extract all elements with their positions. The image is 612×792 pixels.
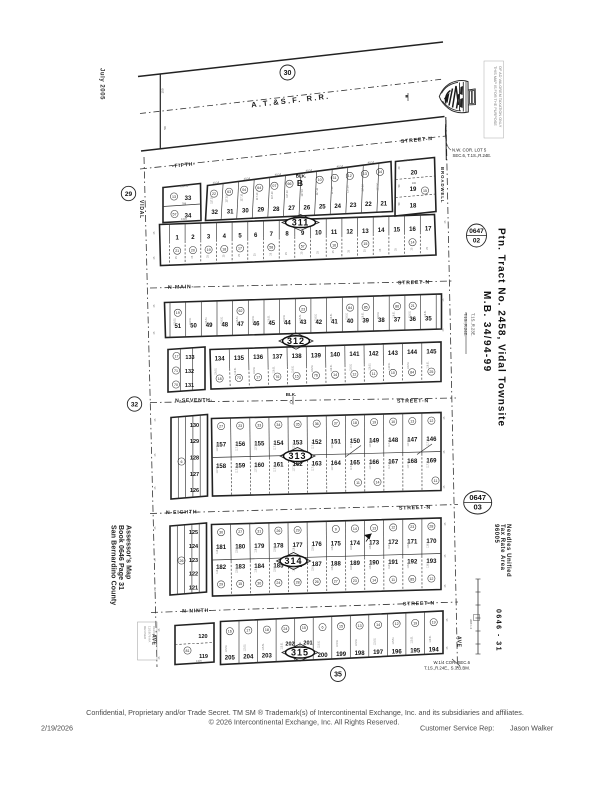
svg-text:116.51: 116.51 bbox=[393, 311, 396, 319]
svg-text:18: 18 bbox=[353, 421, 357, 425]
svg-text:141: 141 bbox=[349, 352, 360, 358]
svg-text:202: 202 bbox=[285, 642, 294, 648]
svg-text:116.51: 116.51 bbox=[234, 367, 237, 375]
svg-text:16: 16 bbox=[332, 243, 336, 247]
svg-text:201: 201 bbox=[303, 641, 312, 647]
svg-text:117.10: 117.10 bbox=[346, 185, 349, 193]
svg-text:Confidential, Proprietary and/: Confidential, Proprietary and/or Trade S… bbox=[86, 708, 524, 717]
svg-text:117.10: 117.10 bbox=[241, 193, 244, 201]
svg-text:116.51: 116.51 bbox=[205, 317, 208, 325]
svg-text:17: 17 bbox=[246, 629, 250, 633]
svg-text:15: 15 bbox=[302, 626, 306, 630]
svg-text:Ptn. Tract No. 2458, Vidal Tow: Ptn. Tract No. 2458, Vidal Townsite bbox=[496, 228, 507, 427]
svg-text:15: 15 bbox=[423, 189, 427, 193]
svg-text:117.16: 117.16 bbox=[293, 464, 296, 472]
svg-text:17: 17 bbox=[175, 354, 179, 358]
svg-text:14: 14 bbox=[376, 480, 380, 484]
svg-text:117.10: 117.10 bbox=[316, 187, 319, 195]
svg-text:SEC.6, T.1S.,R.24E.: SEC.6, T.1S.,R.24E. bbox=[453, 153, 492, 158]
svg-text:40.14: 40.14 bbox=[274, 172, 281, 177]
svg-text:17: 17 bbox=[256, 376, 260, 380]
svg-text:116.51: 116.51 bbox=[369, 363, 372, 371]
svg-text:115.51: 115.51 bbox=[373, 637, 376, 645]
svg-text:117.16: 117.16 bbox=[216, 444, 219, 452]
svg-text:18: 18 bbox=[265, 628, 269, 632]
svg-text:28: 28 bbox=[273, 207, 280, 213]
svg-text:117.16: 117.16 bbox=[426, 438, 429, 446]
svg-text:96005: 96005 bbox=[493, 524, 499, 544]
svg-text:116.51: 116.51 bbox=[330, 364, 333, 372]
svg-text:117.16: 117.16 bbox=[312, 441, 315, 449]
svg-text:117.16: 117.16 bbox=[369, 440, 372, 448]
svg-text:117.16: 117.16 bbox=[388, 439, 391, 447]
svg-text:30: 30 bbox=[284, 70, 292, 77]
svg-text:116.51: 116.51 bbox=[299, 314, 302, 322]
svg-text:13: 13 bbox=[410, 419, 414, 423]
svg-text:32: 32 bbox=[131, 401, 139, 408]
svg-text:13: 13 bbox=[358, 624, 362, 628]
svg-text:756.50: 756.50 bbox=[179, 184, 188, 189]
svg-text:11: 11 bbox=[372, 372, 376, 376]
svg-text:117.10: 117.10 bbox=[271, 191, 274, 199]
svg-text:Book 0646 Page 31: Book 0646 Page 31 bbox=[117, 525, 124, 590]
svg-text:27: 27 bbox=[219, 424, 223, 428]
svg-text:37: 37 bbox=[334, 421, 338, 425]
svg-text:31: 31 bbox=[257, 530, 261, 534]
svg-text:12: 12 bbox=[348, 174, 352, 178]
svg-text:117.10: 117.10 bbox=[361, 184, 364, 192]
svg-text:118.5: 118.5 bbox=[369, 543, 372, 549]
svg-text:205: 205 bbox=[225, 655, 236, 661]
svg-text:27: 27 bbox=[334, 580, 338, 584]
svg-text:118.5: 118.5 bbox=[254, 566, 257, 572]
svg-text:118.5: 118.5 bbox=[235, 547, 238, 553]
svg-text:312: 312 bbox=[287, 336, 305, 346]
svg-text:85: 85 bbox=[364, 305, 368, 309]
svg-text:81: 81 bbox=[186, 649, 190, 653]
svg-text:76: 76 bbox=[314, 374, 318, 378]
svg-text:6: 6 bbox=[322, 625, 324, 629]
svg-text:30: 30 bbox=[219, 531, 223, 535]
svg-text:116.51: 116.51 bbox=[189, 317, 192, 325]
svg-text:118.5: 118.5 bbox=[407, 542, 410, 548]
svg-text:17: 17 bbox=[425, 227, 432, 233]
svg-text:116.51: 116.51 bbox=[424, 310, 427, 318]
svg-text:12: 12 bbox=[352, 372, 356, 376]
svg-text:118.5: 118.5 bbox=[293, 565, 296, 571]
svg-text:15: 15 bbox=[363, 242, 367, 246]
svg-text:118.5: 118.5 bbox=[216, 567, 219, 573]
svg-text:116.51: 116.51 bbox=[283, 314, 286, 322]
svg-text:AVE: AVE bbox=[456, 636, 462, 648]
svg-text:13: 13 bbox=[363, 172, 367, 176]
svg-text:W.1/4 COR. SEC.6: W.1/4 COR. SEC.6 bbox=[433, 660, 470, 665]
svg-text:117.16: 117.16 bbox=[216, 466, 219, 474]
svg-text:32: 32 bbox=[211, 210, 218, 216]
svg-text:© 2026 Intercontinental Exchan: © 2026 Intercontinental Exchange, Inc. A… bbox=[209, 718, 400, 727]
svg-text:197: 197 bbox=[373, 650, 384, 656]
svg-text:25: 25 bbox=[319, 205, 326, 211]
svg-text:02: 02 bbox=[473, 238, 481, 245]
svg-text:117.16: 117.16 bbox=[407, 439, 410, 447]
svg-text:117.16: 117.16 bbox=[235, 465, 238, 473]
svg-text:28: 28 bbox=[296, 581, 300, 585]
svg-text:73: 73 bbox=[237, 376, 241, 380]
svg-text:64: 64 bbox=[257, 186, 261, 190]
svg-text:22: 22 bbox=[212, 192, 216, 196]
svg-text:29: 29 bbox=[219, 583, 223, 587]
svg-text:BROADWELL: BROADWELL bbox=[440, 167, 445, 203]
svg-text:15: 15 bbox=[238, 582, 242, 586]
svg-text:Jason Walker: Jason Walker bbox=[510, 724, 554, 733]
svg-text:117.10: 117.10 bbox=[377, 182, 380, 190]
svg-text:85: 85 bbox=[410, 577, 414, 581]
svg-text:26: 26 bbox=[180, 559, 184, 563]
svg-text:N.W. COR. LOT 5: N.W. COR. LOT 5 bbox=[452, 148, 487, 153]
svg-text:117.16: 117.16 bbox=[273, 442, 276, 450]
svg-text:199: 199 bbox=[336, 652, 347, 658]
svg-text:15: 15 bbox=[393, 228, 400, 234]
svg-text:14: 14 bbox=[353, 527, 357, 531]
svg-text:OF AD VALOREM TAXATION ONLY: OF AD VALOREM TAXATION ONLY bbox=[498, 66, 502, 128]
svg-text:13: 13 bbox=[172, 195, 176, 199]
svg-text:120: 120 bbox=[198, 634, 207, 640]
svg-text:116.51: 116.51 bbox=[272, 366, 275, 374]
svg-text:19: 19 bbox=[432, 621, 436, 625]
svg-text:144: 144 bbox=[407, 350, 418, 356]
svg-text:136: 136 bbox=[253, 355, 264, 361]
svg-text:26: 26 bbox=[304, 205, 311, 211]
svg-text:REVISED: REVISED bbox=[143, 626, 147, 640]
svg-text:12: 12 bbox=[429, 419, 433, 423]
svg-text:27: 27 bbox=[288, 206, 295, 212]
svg-text:198: 198 bbox=[355, 651, 366, 657]
svg-text:23: 23 bbox=[301, 307, 305, 311]
svg-text:34: 34 bbox=[276, 423, 280, 427]
svg-text:116.51: 116.51 bbox=[408, 310, 411, 318]
svg-text:1"=100': 1"=100' bbox=[469, 619, 473, 629]
svg-text:118.5: 118.5 bbox=[273, 546, 276, 552]
svg-text:50: 50 bbox=[163, 126, 167, 130]
svg-text:STREET-N: STREET-N bbox=[398, 280, 430, 287]
svg-text:116.51: 116.51 bbox=[426, 361, 429, 369]
svg-text:117.10: 117.10 bbox=[226, 194, 229, 202]
svg-text:0647: 0647 bbox=[469, 228, 484, 235]
svg-text:139: 139 bbox=[311, 353, 322, 359]
svg-text:115.51: 115.51 bbox=[336, 639, 339, 647]
svg-text:117.16: 117.16 bbox=[350, 440, 353, 448]
svg-text:118.5: 118.5 bbox=[273, 566, 276, 572]
svg-text:B: B bbox=[297, 178, 303, 188]
svg-text:T.1S.,R.23E.: T.1S.,R.23E. bbox=[471, 313, 476, 337]
svg-text:116.51: 116.51 bbox=[220, 316, 223, 324]
svg-text:118.5: 118.5 bbox=[388, 562, 391, 568]
svg-text:14: 14 bbox=[376, 623, 380, 627]
svg-text:118.5: 118.5 bbox=[369, 563, 372, 569]
svg-text:118.5: 118.5 bbox=[312, 565, 315, 571]
svg-text:28: 28 bbox=[429, 525, 433, 529]
svg-text:76: 76 bbox=[275, 375, 279, 379]
svg-text:STREET-N: STREET-N bbox=[403, 600, 435, 607]
svg-text:23: 23 bbox=[238, 424, 242, 428]
svg-text:VIDAL: VIDAL bbox=[138, 200, 144, 219]
svg-text:118.5: 118.5 bbox=[312, 545, 315, 551]
svg-text:30: 30 bbox=[257, 582, 261, 586]
svg-text:100: 100 bbox=[412, 182, 417, 185]
svg-text:12: 12 bbox=[346, 229, 353, 235]
svg-text:9: 9 bbox=[335, 527, 337, 531]
svg-text:N-MAIN-: N-MAIN- bbox=[168, 284, 194, 291]
svg-text:16: 16 bbox=[228, 630, 232, 634]
svg-text:10: 10 bbox=[391, 420, 395, 424]
svg-text:36: 36 bbox=[315, 422, 319, 426]
svg-text:118.5: 118.5 bbox=[426, 561, 429, 567]
svg-text:117.16: 117.16 bbox=[235, 443, 238, 451]
svg-text:84: 84 bbox=[348, 306, 352, 310]
svg-text:14: 14 bbox=[411, 241, 415, 245]
svg-text:70: 70 bbox=[174, 383, 178, 387]
svg-text:STREET-N: STREET-N bbox=[397, 398, 429, 405]
svg-text:19: 19 bbox=[372, 420, 376, 424]
svg-text:58: 58 bbox=[269, 246, 273, 250]
svg-text:117.10: 117.10 bbox=[301, 188, 304, 196]
svg-text:132: 132 bbox=[185, 369, 194, 375]
svg-text:35: 35 bbox=[334, 671, 342, 678]
svg-text:18: 18 bbox=[222, 247, 226, 251]
svg-text:11/18/76 KA: 11/18/76 KA bbox=[148, 626, 152, 642]
svg-text:116.51: 116.51 bbox=[252, 315, 255, 323]
svg-text:115.51: 115.51 bbox=[225, 644, 228, 652]
svg-text:13: 13 bbox=[372, 526, 376, 530]
svg-text:117.16: 117.16 bbox=[254, 443, 257, 451]
svg-text:118.5: 118.5 bbox=[331, 544, 334, 550]
svg-text:19: 19 bbox=[410, 187, 417, 193]
svg-text:24: 24 bbox=[283, 627, 287, 631]
svg-text:116.51: 116.51 bbox=[314, 313, 317, 321]
svg-text:117.10: 117.10 bbox=[256, 192, 259, 200]
svg-text:T.1S.,R.24E.: T.1S.,R.24E. bbox=[463, 313, 468, 337]
svg-text:THIS MAP IS FOR THE PURPOSE: THIS MAP IS FOR THE PURPOSE bbox=[493, 66, 497, 126]
svg-text:116.51: 116.51 bbox=[377, 311, 380, 319]
svg-text:19: 19 bbox=[413, 621, 417, 625]
svg-text:14: 14 bbox=[378, 170, 382, 174]
svg-text:66: 66 bbox=[288, 182, 292, 186]
svg-text:N-SEVENTH-: N-SEVENTH- bbox=[175, 397, 213, 404]
svg-text:116.51: 116.51 bbox=[361, 312, 364, 320]
svg-text:204: 204 bbox=[243, 654, 254, 660]
svg-text:117.10: 117.10 bbox=[331, 186, 334, 194]
svg-text:140: 140 bbox=[330, 353, 341, 359]
svg-text:117.16: 117.16 bbox=[426, 460, 429, 468]
svg-text:BLK.: BLK. bbox=[286, 392, 297, 397]
svg-text:11: 11 bbox=[434, 479, 438, 483]
svg-text:124: 124 bbox=[189, 544, 199, 550]
svg-text:14: 14 bbox=[378, 228, 385, 234]
svg-text:11: 11 bbox=[356, 481, 360, 485]
svg-text:131: 131 bbox=[185, 383, 194, 389]
svg-text:15: 15 bbox=[295, 374, 299, 378]
svg-text:118.5: 118.5 bbox=[350, 543, 353, 549]
svg-text:118.5: 118.5 bbox=[331, 564, 334, 570]
svg-text:Assessor's Map: Assessor's Map bbox=[125, 525, 132, 579]
svg-text:143: 143 bbox=[388, 351, 399, 357]
svg-text:23: 23 bbox=[410, 525, 414, 529]
svg-text:117.16: 117.16 bbox=[312, 463, 315, 471]
svg-text:117.16: 117.16 bbox=[331, 463, 334, 471]
svg-text:40.14: 40.14 bbox=[212, 180, 219, 185]
svg-text:200: 200 bbox=[318, 653, 329, 659]
svg-text:01/27/70 KA: 01/27/70 KA bbox=[152, 626, 156, 643]
svg-text:116.51: 116.51 bbox=[215, 368, 218, 376]
svg-text:13: 13 bbox=[362, 229, 369, 235]
svg-text:12: 12 bbox=[395, 622, 399, 626]
svg-text:26: 26 bbox=[276, 529, 280, 533]
svg-text:118.5: 118.5 bbox=[388, 542, 391, 548]
svg-text:N-EIGHTH-: N-EIGHTH- bbox=[166, 509, 200, 516]
svg-text:115.51: 115.51 bbox=[355, 638, 358, 646]
svg-text:311: 311 bbox=[292, 218, 310, 228]
svg-text:20: 20 bbox=[411, 171, 418, 177]
svg-text:115.51: 115.51 bbox=[262, 643, 265, 651]
svg-text:115.51: 115.51 bbox=[299, 641, 302, 649]
svg-text:10: 10 bbox=[391, 371, 395, 375]
svg-text:127: 127 bbox=[190, 472, 199, 478]
svg-text:19: 19 bbox=[176, 311, 180, 315]
svg-text:117.10: 117.10 bbox=[211, 196, 214, 204]
svg-text:21: 21 bbox=[380, 201, 387, 207]
svg-text:July 2005: July 2005 bbox=[99, 68, 105, 100]
svg-text:130: 130 bbox=[190, 423, 199, 429]
svg-text:24: 24 bbox=[334, 204, 341, 210]
svg-text:116.51: 116.51 bbox=[173, 318, 176, 326]
svg-text:116.51: 116.51 bbox=[388, 362, 391, 370]
svg-text:194: 194 bbox=[429, 648, 440, 654]
svg-text:195: 195 bbox=[410, 648, 421, 654]
svg-text:33: 33 bbox=[257, 423, 261, 427]
svg-text:71: 71 bbox=[174, 369, 178, 373]
svg-text:07: 07 bbox=[272, 184, 276, 188]
svg-text:138: 138 bbox=[292, 354, 303, 360]
svg-text:142: 142 bbox=[369, 351, 380, 357]
svg-text:118.5: 118.5 bbox=[293, 545, 296, 551]
svg-text:10: 10 bbox=[318, 178, 322, 182]
svg-text:116.51: 116.51 bbox=[311, 364, 314, 372]
svg-text:23: 23 bbox=[350, 203, 357, 209]
svg-text:20: 20 bbox=[191, 248, 195, 252]
svg-text:57: 57 bbox=[301, 245, 305, 249]
svg-text:118.5: 118.5 bbox=[407, 562, 410, 568]
svg-text:T.1S.,R.24E., S.3.B.BM.: T.1S.,R.24E., S.3.B.BM. bbox=[424, 666, 470, 671]
svg-text:12: 12 bbox=[391, 526, 395, 530]
svg-text:29: 29 bbox=[296, 528, 300, 532]
svg-text:17: 17 bbox=[238, 247, 242, 251]
svg-text:11: 11 bbox=[331, 230, 338, 236]
svg-text:203: 203 bbox=[262, 654, 273, 660]
svg-text:N-NINTH-: N-NINTH- bbox=[182, 608, 212, 615]
svg-text:115.51: 115.51 bbox=[429, 635, 432, 643]
svg-text:18: 18 bbox=[410, 204, 417, 210]
svg-text:M.B. 34/94-99: M.B. 34/94-99 bbox=[481, 291, 492, 373]
svg-text:30: 30 bbox=[242, 209, 249, 215]
svg-text:35: 35 bbox=[296, 422, 300, 426]
svg-text:21: 21 bbox=[411, 304, 415, 308]
svg-text:63: 63 bbox=[227, 190, 231, 194]
svg-text:115.51: 115.51 bbox=[392, 637, 395, 645]
svg-text:116.51: 116.51 bbox=[330, 313, 333, 321]
svg-text:14: 14 bbox=[372, 578, 376, 582]
svg-text:116.51: 116.51 bbox=[349, 363, 352, 371]
svg-text:133: 133 bbox=[185, 355, 194, 361]
svg-text:116.51: 116.51 bbox=[292, 365, 295, 373]
svg-text:2/19/2026: 2/19/2026 bbox=[41, 724, 73, 733]
svg-text:117.16: 117.16 bbox=[388, 461, 391, 469]
svg-text:118.5: 118.5 bbox=[216, 547, 219, 553]
svg-text:12: 12 bbox=[429, 577, 433, 581]
svg-text:62: 62 bbox=[239, 309, 243, 313]
svg-text:117.16: 117.16 bbox=[254, 465, 257, 473]
svg-text:25: 25 bbox=[429, 370, 433, 374]
svg-text:129: 129 bbox=[190, 439, 199, 445]
svg-text:134: 134 bbox=[215, 356, 226, 362]
svg-text:118.5: 118.5 bbox=[254, 546, 257, 552]
svg-text:135: 135 bbox=[234, 356, 245, 362]
svg-text:1320: 1320 bbox=[181, 217, 188, 221]
svg-text:118.5: 118.5 bbox=[426, 541, 429, 547]
svg-text:128: 128 bbox=[190, 456, 199, 462]
svg-text:33: 33 bbox=[185, 196, 192, 202]
svg-text:22: 22 bbox=[365, 202, 372, 208]
svg-text:26: 26 bbox=[315, 580, 319, 584]
svg-text:115.51: 115.51 bbox=[281, 642, 284, 650]
svg-text:118.5: 118.5 bbox=[235, 567, 238, 573]
svg-text:STREET-N: STREET-N bbox=[399, 505, 431, 512]
svg-text:27: 27 bbox=[238, 530, 242, 534]
svg-text:117.16: 117.16 bbox=[293, 442, 296, 450]
svg-text:23: 23 bbox=[353, 579, 357, 583]
svg-text:57: 57 bbox=[173, 212, 177, 216]
svg-text:145: 145 bbox=[426, 350, 437, 356]
svg-text:117.16: 117.16 bbox=[407, 461, 410, 469]
svg-text:14: 14 bbox=[333, 373, 337, 377]
svg-text:31: 31 bbox=[227, 209, 234, 215]
svg-text:313: 313 bbox=[288, 451, 306, 461]
svg-text:19: 19 bbox=[207, 248, 211, 252]
svg-text:123: 123 bbox=[189, 558, 198, 564]
svg-text:116.51: 116.51 bbox=[407, 361, 410, 369]
svg-text:122: 122 bbox=[189, 572, 198, 578]
svg-text:115.51: 115.51 bbox=[244, 644, 247, 652]
svg-text:1320: 1320 bbox=[196, 659, 203, 663]
svg-text:116.51: 116.51 bbox=[236, 316, 239, 324]
svg-text:84: 84 bbox=[410, 371, 414, 375]
svg-text:117.16: 117.16 bbox=[331, 441, 334, 449]
svg-text:196: 196 bbox=[392, 649, 403, 655]
svg-text:116.51: 116.51 bbox=[267, 315, 270, 323]
svg-text:117.16: 117.16 bbox=[350, 462, 353, 470]
svg-text:San Bernardino County: San Bernardino County bbox=[110, 525, 117, 605]
svg-text:137: 137 bbox=[272, 355, 283, 361]
svg-text:40.14: 40.14 bbox=[336, 164, 343, 169]
svg-text:11: 11 bbox=[391, 578, 395, 582]
svg-text:0646 - 31: 0646 - 31 bbox=[495, 609, 502, 652]
svg-text:11: 11 bbox=[333, 176, 337, 180]
svg-text:121: 121 bbox=[189, 585, 198, 591]
svg-text:115.51: 115.51 bbox=[318, 640, 321, 648]
svg-text:126: 126 bbox=[190, 488, 199, 494]
svg-text:03: 03 bbox=[474, 503, 482, 512]
svg-text:117.16: 117.16 bbox=[273, 464, 276, 472]
svg-text:16: 16 bbox=[409, 227, 416, 233]
